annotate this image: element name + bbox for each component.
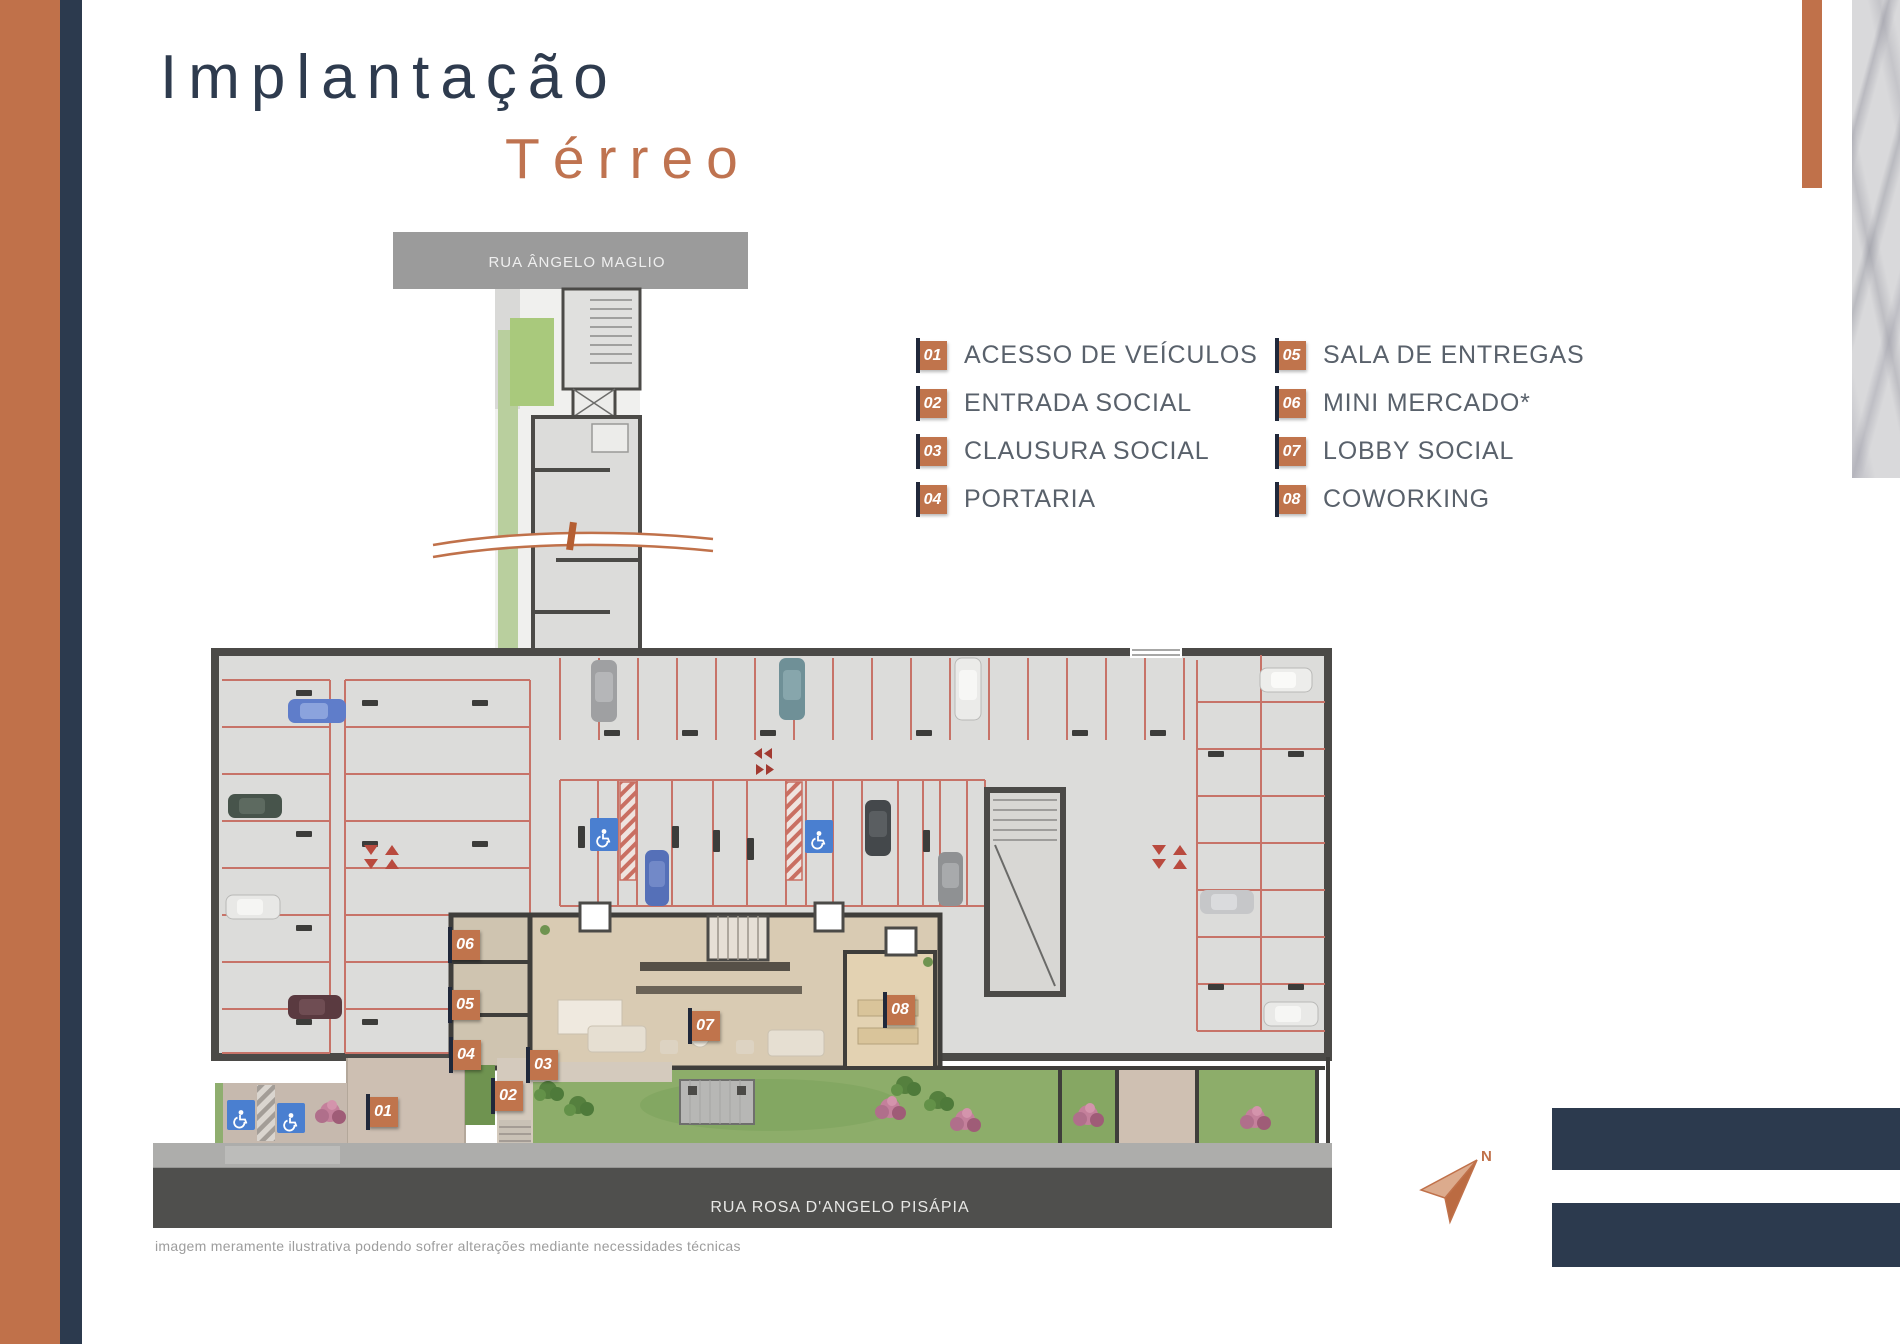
car-teal-toprow: [779, 658, 805, 720]
car-white-topright: [1260, 668, 1312, 692]
plan-badge-08: 08: [885, 995, 915, 1025]
street-band-bottom: RUA ROSA D'ANGELO PISÁPIA: [153, 1143, 1332, 1228]
street-top-label: RUA ÂNGELO MAGLIO: [488, 254, 665, 271]
north-label: N: [1481, 1148, 1492, 1165]
north-arrow: N: [1421, 1148, 1492, 1222]
brochure-page: { "page": { "title_line1": "Implantação"…: [0, 0, 1900, 1344]
car-blue-left: [288, 699, 346, 723]
car-suv-middle: [865, 800, 891, 856]
plan-badge-06: 06: [450, 930, 480, 960]
car-darkred-left: [288, 995, 342, 1019]
plan-badge-02: 02: [493, 1081, 523, 1111]
stair-core: [987, 790, 1063, 994]
plan-badge-01: 01: [368, 1097, 398, 1127]
car-gray-toprow: [591, 660, 617, 722]
plan-badge-03: 03: [528, 1050, 558, 1080]
car-silver-middle: [938, 852, 963, 906]
site-plan-illustration: RUA ÂNGELO MAGLIO: [0, 0, 1900, 1344]
garage-gate-detail: [1130, 646, 1182, 658]
access-strip: [495, 289, 640, 652]
street-band-top: RUA ÂNGELO MAGLIO: [393, 232, 748, 289]
car-white-toprow: [955, 658, 981, 720]
car-white-bottomright: [1264, 1002, 1318, 1026]
street-bottom-label: RUA ROSA D'ANGELO PISÁPIA: [710, 1197, 969, 1216]
car-white-left: [226, 895, 280, 919]
plan-badge-05: 05: [450, 990, 480, 1020]
plan-badge-07: 07: [690, 1011, 720, 1041]
car-blue-middle: [645, 850, 669, 906]
plan-badge-04: 04: [451, 1040, 481, 1070]
car-silver-right: [1200, 890, 1254, 914]
disclaimer-text: imagem meramente ilustrativa podendo sof…: [155, 1238, 741, 1254]
social-area: [451, 903, 940, 1068]
car-green-left: [228, 794, 282, 818]
